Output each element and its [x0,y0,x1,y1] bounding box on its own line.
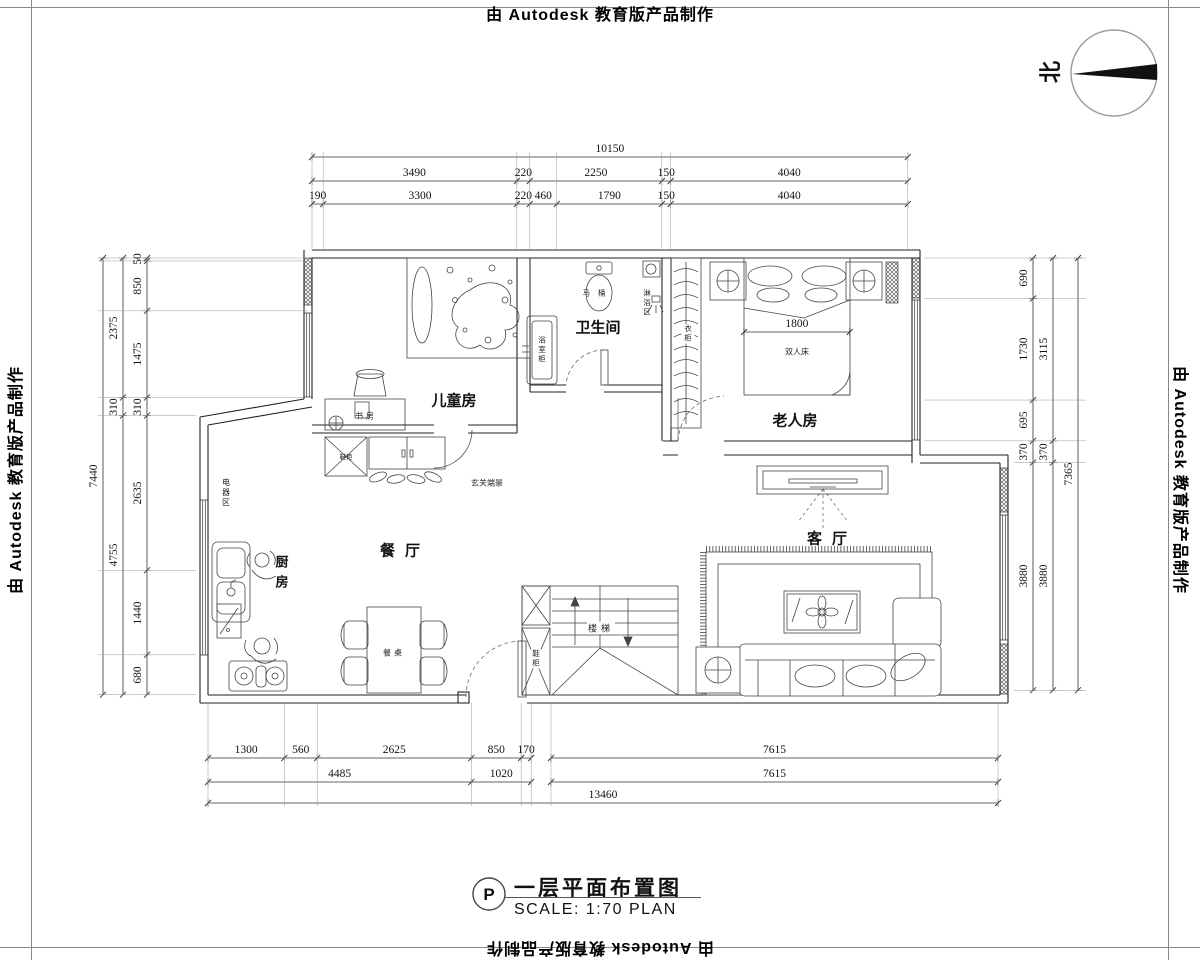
floorplan-sheet: 由 Autodesk 教育版产品制作 由 Autodesk 教育版产品制作 由 … [0,0,1200,960]
title-underline [505,897,701,898]
title-block-graphics [0,0,1200,960]
title-tag: P [483,885,494,905]
drawing-scale: SCALE: 1:70 PLAN [514,901,677,919]
